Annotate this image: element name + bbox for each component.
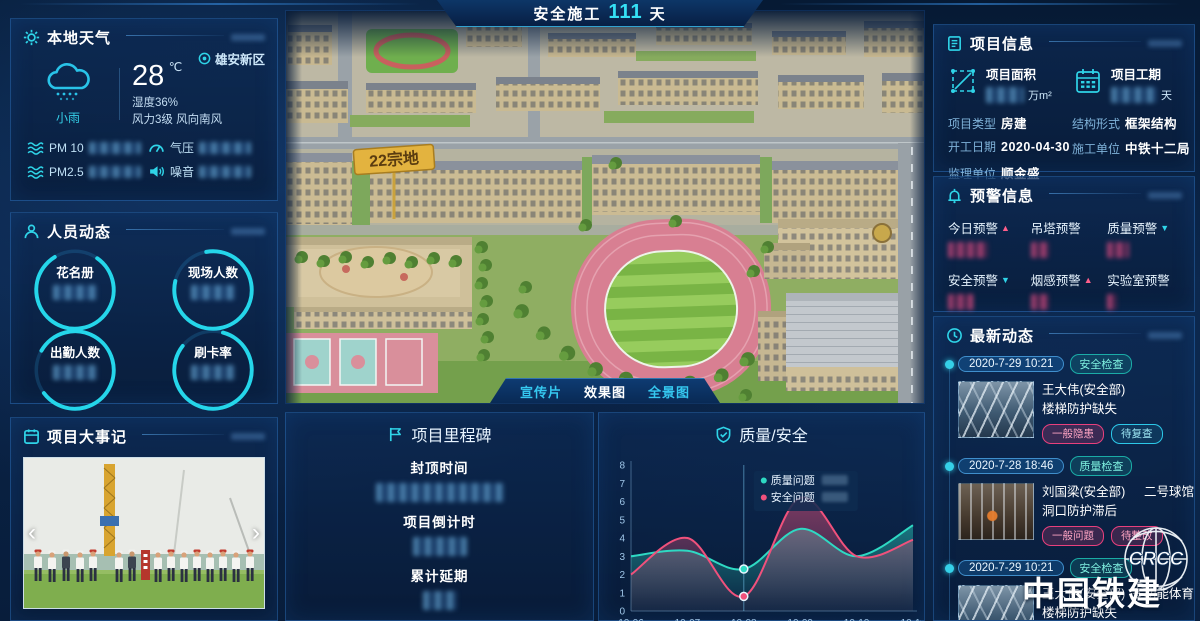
warning-today: 今日预警▲	[948, 218, 1025, 258]
severity-badge: 一般隐患	[1042, 424, 1104, 444]
status-badge: 待复查	[1111, 424, 1163, 444]
duration-label: 项目工期	[1111, 64, 1172, 83]
stat-label: 现场人数	[188, 262, 238, 281]
metric-label: PM2.5	[49, 165, 84, 179]
redacted-value	[1111, 87, 1157, 103]
milestone-label: 封顶时间	[411, 457, 469, 477]
redacted-value	[413, 537, 467, 556]
field-start-date: 开工日期2020-04-30	[948, 138, 1070, 157]
svg-text:5: 5	[619, 515, 625, 526]
pressure-gauge-icon	[148, 139, 165, 156]
update-photo-thumb[interactable]	[958, 483, 1034, 540]
svg-text:8: 8	[619, 461, 625, 472]
update-item[interactable]: 2020-7-28 18:46 质量检查 刘国梁(安全部)二号球馆 洞口防护滞后…	[944, 456, 1194, 558]
update-issue: 洞口防护滞后	[1042, 502, 1194, 521]
milestone-topping-time: 封顶时间	[376, 457, 504, 502]
tab-promo-video[interactable]: 宣传片	[520, 382, 562, 401]
humidity-text: 湿度36%	[132, 94, 222, 110]
update-type-badge: 安全检查	[1070, 558, 1132, 578]
milestone-countdown: 项目倒计时	[403, 511, 476, 556]
redacted-value	[191, 285, 235, 300]
field-project-type: 项目类型房建	[948, 113, 1070, 132]
alarm-bell-icon	[946, 187, 963, 204]
flag-icon	[387, 426, 404, 443]
svg-text:0: 0	[619, 607, 625, 618]
update-datetime: 2020-7-29 10:21	[958, 560, 1064, 576]
duration-unit: 天	[1161, 87, 1172, 103]
calendar-note-icon	[23, 428, 40, 445]
redacted-value	[191, 365, 235, 380]
redacted-value	[199, 142, 251, 154]
svg-text:2: 2	[619, 570, 625, 581]
trend-up-icon: ▲	[1084, 275, 1093, 285]
pm-waves-icon	[27, 163, 44, 180]
wind-text: 风力3级 风向南风	[132, 111, 222, 127]
stat-label: 花名册	[56, 262, 94, 281]
milestone-label: 累计延期	[411, 565, 469, 585]
gallery-next-arrow[interactable]: ›	[252, 521, 260, 545]
update-person: 刘国梁(安全部)	[1042, 483, 1125, 502]
redacted-value	[89, 142, 141, 154]
svg-text:6: 6	[619, 497, 625, 508]
field-contractor: 施工单位中铁十二局	[1072, 138, 1190, 157]
shield-check-icon	[715, 426, 732, 443]
calendar-icon	[1073, 66, 1103, 96]
chart-panel-title: 质量/安全	[739, 422, 807, 446]
event-photo[interactable]: ‹ ›	[23, 457, 265, 609]
redacted-value	[423, 591, 457, 610]
warnings-title: 预警信息	[970, 185, 1034, 206]
safety-days-ribbon: 安全施工 111 天	[437, 0, 763, 27]
metric-label: PM 10	[49, 141, 84, 155]
warning-crane: 吊塔预警	[1031, 218, 1102, 258]
personnel-panel-title: 人员动态	[47, 221, 111, 242]
weather-panel: 本地天气 雄安新区 小雨 28 ℃ 湿度36% 风力3级 风向南风	[10, 18, 278, 201]
update-item[interactable]: 2020-7-29 10:21 安全检查 王大伟(安全部)多功能体育馆 楼梯防护…	[944, 558, 1194, 621]
redacted-value	[1031, 242, 1049, 258]
location-chip: 雄安新区	[198, 49, 265, 68]
redacted-value	[199, 166, 251, 178]
stat-label: 出勤人数	[50, 342, 100, 361]
location-label: 雄安新区	[215, 49, 265, 68]
tab-panorama[interactable]: 全景图	[648, 382, 690, 401]
safety-days-value: 111	[608, 1, 642, 24]
gallery-prev-arrow[interactable]: ‹	[28, 521, 36, 545]
update-datetime: 2020-7-29 10:21	[958, 356, 1064, 372]
quality-safety-chart: 01234567810-0610-0710-0810-0910-1010-11质…	[601, 451, 922, 621]
tab-rendering[interactable]: 效果图	[584, 382, 626, 401]
gallery-panel-title: 项目大事记	[47, 426, 127, 447]
weather-condition: 小雨	[29, 109, 107, 126]
metric-label: 气压	[170, 139, 194, 156]
pm-waves-icon	[27, 139, 44, 156]
stat-ring-roster: 花名册	[31, 250, 119, 324]
update-location: 二号球馆	[1144, 483, 1194, 502]
svg-text:4: 4	[619, 534, 625, 545]
status-badge: 待整改	[1111, 526, 1163, 546]
stat-ring-swipe-rate: 刷卡率	[169, 330, 257, 404]
updates-title: 最新动态	[970, 325, 1034, 346]
update-issue: 楼梯防护缺失	[1042, 604, 1194, 621]
timeline-dot-icon	[945, 462, 954, 471]
update-type-badge: 质量检查	[1070, 456, 1132, 476]
safety-days-unit: 天	[650, 3, 667, 24]
redacted-value	[986, 87, 1024, 103]
area-label: 项目面积	[986, 64, 1052, 83]
update-person: 王大伟(安全部)	[1042, 381, 1125, 400]
field-structure: 结构形式框架结构	[1072, 113, 1190, 132]
warning-quality: 质量预警▼	[1107, 218, 1184, 258]
milestone-delay: 累计延期	[411, 565, 469, 610]
temperature-value: 28	[132, 60, 164, 92]
temperature-unit: ℃	[169, 60, 182, 74]
updates-panel: 最新动态 2020-7-29 10:21 安全检查 王大伟(安全部) 楼梯防护缺…	[933, 316, 1195, 621]
update-photo-thumb[interactable]	[958, 585, 1034, 621]
metric-label: 噪音	[170, 163, 194, 180]
redacted-value	[89, 166, 141, 178]
stat-ring-onsite: 现场人数	[169, 250, 257, 324]
stat-label: 刷卡率	[194, 342, 232, 361]
area-unit: 万m²	[1028, 87, 1052, 103]
milestone-panel-title: 项目里程碑	[411, 422, 491, 446]
noise-speaker-icon	[148, 163, 165, 180]
redacted-value	[948, 242, 988, 258]
warning-lab: 实验室预警	[1107, 270, 1184, 310]
update-datetime: 2020-7-28 18:46	[958, 458, 1064, 474]
timeline-dot-icon	[945, 360, 954, 369]
quality-safety-panel: 质量/安全 01234567810-0610-0710-0810-0910-10…	[598, 412, 925, 621]
warnings-panel: 预警信息 今日预警▲ 吊塔预警 质量预警▼ 安全预警▼ 烟感预警▲ 实验室预警	[933, 176, 1195, 312]
svg-text:1: 1	[619, 588, 625, 599]
update-issue: 楼梯防护缺失	[1042, 400, 1194, 419]
update-item[interactable]: 2020-7-29 10:21 安全检查 王大伟(安全部) 楼梯防护缺失 一般隐…	[944, 354, 1194, 456]
document-icon	[946, 35, 963, 52]
warning-smoke: 烟感预警▲	[1031, 270, 1102, 310]
update-type-badge: 安全检查	[1070, 354, 1132, 374]
milestone-gallery-panel: 项目大事记	[10, 417, 278, 621]
timeline-dot-icon	[945, 564, 954, 573]
gear-sun-icon	[23, 29, 40, 46]
trend-down-icon: ▼	[1001, 275, 1010, 285]
trend-up-icon: ▲	[1001, 223, 1010, 233]
clock-icon	[946, 327, 963, 344]
stat-ring-attendance: 出勤人数	[31, 330, 119, 404]
project-area-stat: 项目面积 万m²	[948, 64, 1063, 103]
rain-cloud-icon	[42, 89, 94, 106]
top-decor-line	[20, 3, 420, 5]
project-info-title: 项目信息	[970, 33, 1034, 54]
safety-days-label: 安全施工	[533, 3, 601, 24]
redacted-value	[1107, 294, 1117, 310]
area-polygon-icon	[948, 66, 978, 96]
svg-text:质量问题: 质量问题	[771, 474, 815, 487]
redacted-value	[1107, 242, 1129, 258]
dashboard: 22宗地 宣传片 效果图 全景图 安全施工 111 天 本地天气	[0, 0, 1200, 621]
update-photo-thumb[interactable]	[958, 381, 1034, 438]
redacted-value	[53, 365, 97, 380]
redacted-value	[1031, 294, 1049, 310]
milestone-label: 项目倒计时	[403, 511, 476, 531]
update-location: 多功能体育馆	[1131, 585, 1195, 604]
svg-text:安全问题: 安全问题	[771, 490, 815, 504]
milestone-panel: 项目里程碑 封顶时间 项目倒计时 累计延期	[285, 412, 594, 621]
campus-3d-render: 22宗地	[286, 11, 925, 404]
weather-panel-title: 本地天气	[47, 27, 111, 48]
svg-text:7: 7	[619, 479, 625, 490]
person-icon	[23, 223, 40, 240]
redacted-value	[53, 285, 97, 300]
project-info-panel: 项目信息 项目面积 万m² 项目工期 天	[933, 24, 1195, 172]
update-person: 王大伟(安全部)	[1042, 585, 1125, 604]
warning-safety: 安全预警▼	[948, 270, 1025, 310]
project-duration-stat: 项目工期 天	[1073, 64, 1188, 103]
project-render-view: 22宗地 宣传片 效果图 全景图	[285, 10, 925, 404]
top-decor-line	[780, 3, 1180, 5]
location-pin-icon	[198, 52, 211, 65]
redacted-value	[376, 483, 504, 502]
personnel-panel: 人员动态 花名册 现场人数 出勤人数 刷卡率	[10, 212, 278, 404]
trend-down-icon: ▼	[1160, 223, 1169, 233]
render-tab-bar: 宣传片 效果图 全景图	[490, 378, 720, 403]
severity-badge: 一般问题	[1042, 526, 1104, 546]
svg-text:3: 3	[619, 552, 625, 563]
redacted-value	[948, 294, 974, 310]
